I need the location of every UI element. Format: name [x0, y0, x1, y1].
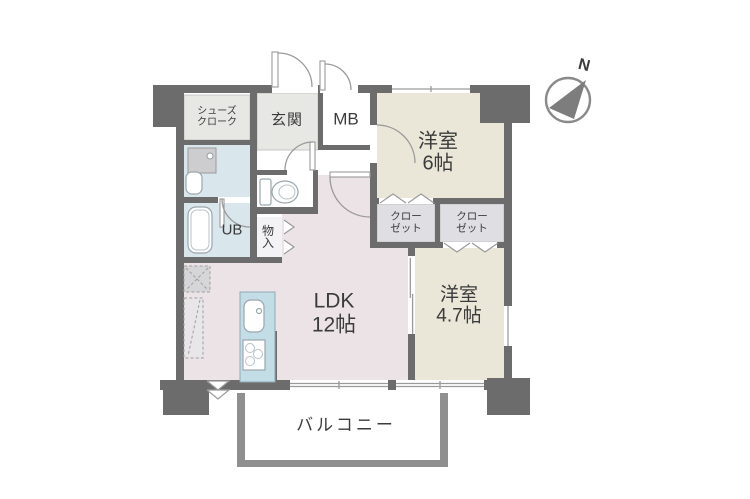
bedroom47-label: 洋室 4.7帖	[436, 285, 481, 328]
bedroom6-label: 洋室 6帖	[418, 131, 458, 176]
pillar-top-left	[153, 85, 180, 127]
wall-toilet-right	[313, 170, 318, 212]
ldk-label: LDK 12帖	[312, 289, 356, 336]
meter-box-label: MB	[333, 109, 359, 128]
compass-icon	[546, 78, 590, 122]
balcony-label: バルコニー	[296, 415, 396, 434]
toilet-bowl-icon	[272, 181, 298, 203]
ldk-bed47-sliding-door	[408, 256, 415, 334]
wall-toilet-top	[257, 170, 289, 175]
wall-wet-column	[250, 93, 257, 263]
kitchen-faucet-icon	[257, 309, 262, 314]
washbasin-icon	[186, 172, 202, 194]
ldk-upper-floor	[282, 212, 377, 263]
ldk-main-floor	[184, 263, 408, 380]
balcony-wall-left	[237, 393, 245, 467]
wall-mb-bottom	[318, 145, 375, 150]
wall-below-ub	[176, 257, 282, 263]
toilet-tank-icon	[260, 179, 271, 205]
entrance-label: 玄関	[271, 113, 303, 130]
balcony-wall-right	[440, 393, 448, 467]
pillar-bottom-left	[163, 382, 209, 415]
toilet-door-leaf	[310, 142, 315, 170]
entrance-door-opening	[272, 85, 318, 93]
closet-a-label: クロー ゼット	[390, 211, 422, 235]
shutter-symbol	[207, 390, 229, 399]
bedroom6-door-opening	[370, 125, 377, 163]
wall-toilet-bottom	[257, 207, 318, 214]
kitchen-sink-icon	[244, 300, 264, 332]
mb-door-opening	[320, 85, 358, 93]
mb-door-leaf	[320, 61, 325, 90]
toilet-door-opening	[287, 170, 313, 175]
wall-shoes-wash	[184, 140, 250, 145]
wall-center-vertical	[370, 93, 377, 248]
balcony-wall-bottom	[237, 460, 448, 467]
wall-left	[176, 93, 184, 382]
washing-machine-drain-icon	[207, 153, 213, 159]
storage-label: 物 入	[262, 225, 274, 249]
washing-machine-icon	[188, 148, 216, 173]
pillar-bottom-right	[487, 378, 530, 415]
entrance-door-arc	[278, 53, 312, 87]
wall-closet-divider	[435, 204, 440, 242]
ldk-notch-floor	[370, 248, 408, 264]
entrance-door-leaf	[272, 52, 278, 87]
wall-mb-left	[318, 93, 323, 150]
ldk-door-leaf	[330, 172, 370, 177]
shoes-closet-label: シューズ クローク	[197, 106, 237, 128]
pillar-top-right	[480, 85, 530, 123]
closet-b-label: クロー ゼット	[456, 211, 488, 235]
unit-bath-label: UB	[222, 223, 243, 240]
floorplan-image: シューズ クローク 玄関 MB 洋室 6帖 クロー ゼット クロー ゼット UB…	[0, 0, 750, 499]
ldk-hall-floor	[318, 175, 370, 215]
